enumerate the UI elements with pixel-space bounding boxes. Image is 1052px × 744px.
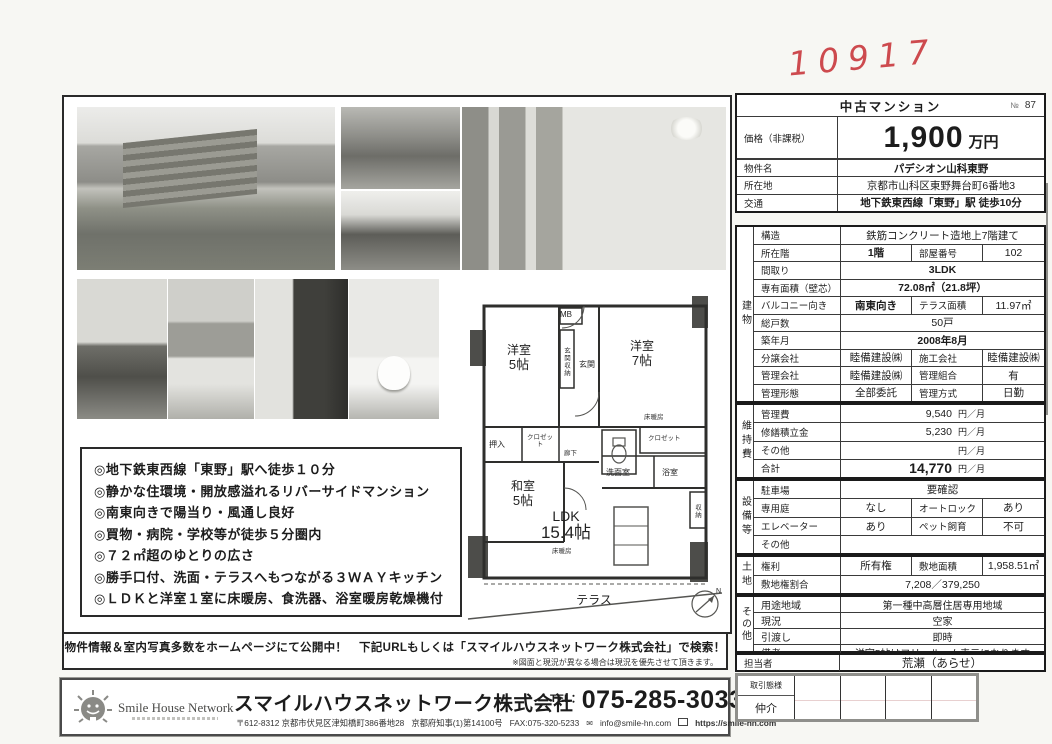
notice-line-2: ※図面と現況が異なる場合は現況を優先させて頂きます。: [64, 657, 726, 668]
table-row: 現況 空家: [754, 612, 1044, 628]
row-value: 荒瀬（あらせ）: [839, 655, 1044, 671]
row-label: 駐車場: [754, 481, 840, 498]
row-value: 第一種中高層住居専用地域: [840, 597, 1044, 612]
row-value: 京都市山科区東野舞台町6番地3: [837, 177, 1044, 193]
row-value: 鉄筋コンクリート造地上7階建て: [840, 227, 1044, 244]
table-row: 引渡し 即時: [754, 628, 1044, 644]
table-row: 合計 14,770円／月: [754, 459, 1044, 477]
row-value: 要確認: [840, 481, 1044, 498]
row-label: 構造: [754, 227, 840, 244]
company-license: 京都府知事(1)第14100号: [411, 718, 502, 728]
notice-line-1: 物件情報＆室内写真多数をホームページにて公開中！ 下記URLもしくは「スマイルハ…: [64, 639, 726, 655]
room-label-terrace: テラス: [564, 594, 624, 608]
row-label: 敷地面積: [911, 557, 982, 575]
photo-bathroom: [255, 279, 348, 419]
deal-empty-cell: [795, 676, 841, 719]
table-row: 交通 地下鉄東西線「東野」駅 徒歩10分: [737, 194, 1044, 211]
table-row: その他: [754, 535, 1044, 553]
deal-type-label: 取引態様: [738, 676, 794, 696]
row-label: 用途地域: [754, 597, 840, 612]
building-section-table: 建物 構造 鉄筋コンクリート造地上7階建て 所在階 1階 部屋番号 102 間取…: [735, 225, 1046, 403]
room-label-storage: 収納: [693, 496, 700, 526]
room-size-japanese-room: 5帖: [500, 494, 546, 509]
other-section-table: その他 用途地域 第一種中高層住居専用地域 現況 空家 引渡し 即時 備考 洋室…: [735, 595, 1046, 653]
table-row: 管理費 9,540円／月: [754, 405, 1044, 422]
row-label: 合計: [754, 460, 840, 477]
room-label-mb: MB: [560, 310, 572, 319]
scan-edge-artifact: [1046, 183, 1048, 415]
company-bar: Smile House Network スマイルハウスネットワーク株式会社 TE…: [60, 678, 730, 736]
company-fax: FAX:075-320-5233: [510, 718, 580, 728]
table-row: 構造 鉄筋コンクリート造地上7階建て: [754, 227, 1044, 244]
table-row: 管理形態 全部委託 管理方式 日勤: [754, 384, 1044, 402]
row-label: 修繕積立金: [754, 423, 840, 440]
table-row: 専用庭 なし オートロック あり: [754, 498, 1044, 516]
room-label-corridor: 廊下: [564, 450, 577, 457]
room-label-closet-right: クロゼット: [648, 435, 681, 442]
section-label-land: 土地: [737, 557, 754, 593]
row-value: パデシオン山科東野: [837, 160, 1044, 176]
sun-face-icon: [72, 688, 114, 730]
company-logo: Smile House Network: [72, 688, 232, 730]
table-row: 管理会社 睦備建設㈱ 管理組合 有: [754, 366, 1044, 384]
page: { "annotations": { "number": "10917", "n…: [0, 0, 1052, 744]
label-floor-heating-ldk: 床暖房: [552, 548, 572, 555]
company-address-line: 〒612-8312 京都市伏見区津知橋町386番地28京都府知事(1)第1410…: [236, 717, 783, 729]
room-label-closet-left: クロゼット: [526, 434, 554, 449]
feature-item: ◎ＬＤＫと洋室１室に床暖房、食洗器、浴室暖房乾燥機付: [94, 588, 450, 610]
row-value: なし: [840, 499, 911, 516]
listing-summary-table: 中古マンション №87 価格（非課税） 1,900万円 物件名 パデシオン山科東…: [735, 93, 1046, 213]
listing-type-title: 中古マンション: [737, 96, 1044, 115]
table-row: 間取り 3LDK: [754, 261, 1044, 279]
row-value: 9,540円／月: [840, 405, 1044, 422]
staff-row-table: 担当者 荒瀬（あらせ）: [735, 653, 1046, 672]
row-value: 1,958.51㎡: [982, 557, 1044, 575]
company-email: info@smile-hn.com: [600, 718, 671, 728]
row-label: 施工会社: [911, 350, 982, 367]
row-label: 敷地権割合: [754, 576, 840, 594]
row-label: 担当者: [737, 655, 839, 671]
row-value: 2008年8月: [840, 332, 1044, 349]
table-row: 築年月 2008年8月: [754, 331, 1044, 349]
room-label-entrance-storage: 玄関収納: [562, 340, 569, 384]
photo-washbasin: [168, 279, 254, 419]
row-value: [840, 536, 1044, 553]
row-value: 50戸: [840, 315, 1044, 332]
room-size-ldk: 15.4帖: [530, 523, 602, 543]
company-postal-address: 〒612-8312 京都市伏見区津知橋町386番地28: [236, 718, 404, 728]
row-label: バルコニー向き: [754, 297, 840, 314]
room-size-west-room-5: 5帖: [496, 358, 542, 373]
feature-item: ◎南東向きで陽当り・風通し良好: [94, 502, 450, 524]
row-label: オートロック: [911, 499, 982, 516]
photo-living-room: [462, 107, 726, 270]
row-label: 引渡し: [754, 629, 840, 644]
table-row: 物件名 パデシオン山科東野: [737, 159, 1044, 176]
section-label-maintenance: 維持費: [737, 405, 754, 477]
notice-box: 物件情報＆室内写真多数をホームページにて公開中！ 下記URLもしくは「スマイルハ…: [62, 632, 728, 670]
row-value: 7,208／379,250: [840, 576, 1044, 594]
row-label: 管理形態: [754, 385, 840, 402]
row-label: その他: [754, 536, 840, 553]
row-label: 管理組合: [911, 367, 982, 384]
row-value: 睦備建設㈱: [982, 350, 1044, 367]
price-label: 価格（非課税）: [737, 117, 837, 158]
table-row: 駐車場 要確認: [754, 481, 1044, 498]
room-label-west-room-7: 洋室: [616, 340, 668, 354]
floorplan-walls: [464, 292, 728, 627]
row-label: 現況: [754, 613, 840, 628]
land-section-table: 土地 権利 所有権 敷地面積 1,958.51㎡ 敷地権割合 7,208／379…: [735, 555, 1046, 595]
row-value: 有: [982, 367, 1044, 384]
handwritten-listing-number: 10917: [787, 32, 940, 84]
company-logo-text: Smile House Network: [118, 700, 234, 716]
room-size-west-room-7: 7帖: [616, 354, 668, 369]
photo-entrance-lobby: [341, 191, 460, 270]
table-row: 所在階 1階 部屋番号 102: [754, 244, 1044, 262]
row-label: 総戸数: [754, 315, 840, 332]
feature-item: ◎７２㎡超のゆとりの広さ: [94, 545, 450, 567]
photo-building-exterior: [77, 107, 335, 270]
row-value: 円／月: [840, 442, 1044, 459]
table-row: 修繕積立金 5,230円／月: [754, 422, 1044, 440]
row-label: 部屋番号: [911, 245, 982, 262]
table-row: 敷地権割合 7,208／379,250: [754, 575, 1044, 594]
number-symbol: №: [1010, 101, 1019, 110]
room-label-bathroom: 浴室: [662, 468, 678, 477]
row-label: 管理会社: [754, 367, 840, 384]
deal-empty-cell: [841, 676, 887, 719]
row-label: 物件名: [737, 160, 837, 176]
compass-icon: N: [716, 588, 721, 596]
price-value: 1,900万円: [837, 117, 1044, 158]
row-label: 所在地: [737, 177, 837, 193]
row-value: 空家: [840, 613, 1044, 628]
deal-empty-cell: [886, 676, 932, 719]
section-label-facilities: 設備等: [737, 481, 754, 553]
deal-type-cell: 取引態様 仲介: [738, 676, 795, 719]
price-row: 価格（非課税） 1,900万円: [737, 117, 1044, 159]
row-label: 分譲会社: [754, 350, 840, 367]
row-label: 権利: [754, 557, 840, 575]
row-value: 102: [982, 245, 1044, 262]
facilities-section-table: 設備等 駐車場 要確認 専用庭 なし オートロック あり エレベーター あり ペ…: [735, 479, 1046, 555]
row-label: 管理方式: [911, 385, 982, 402]
room-label-oshiire: 押入: [489, 440, 505, 449]
deal-empty-cell: [932, 676, 977, 719]
row-value: 睦備建設㈱: [840, 367, 911, 384]
room-label-washroom: 洗面室: [606, 468, 630, 477]
row-label: 専有面積（壁芯）: [754, 280, 840, 297]
table-row: その他 円／月: [754, 441, 1044, 459]
row-value: 72.08㎡（21.8坪）: [840, 280, 1044, 297]
row-value: 11.97㎡: [982, 297, 1044, 314]
table-row: 担当者 荒瀬（あらせ）: [737, 655, 1044, 671]
table-row: 総戸数 50戸: [754, 314, 1044, 332]
table-row: エレベーター あり ペット飼育 不可: [754, 517, 1044, 535]
row-value: 3LDK: [840, 262, 1044, 279]
row-value: 地下鉄東西線「東野」駅 徒歩10分: [837, 195, 1044, 211]
email-icon: ✉: [586, 719, 593, 728]
row-value: 南東向き: [840, 297, 911, 314]
row-label: エレベーター: [754, 518, 840, 535]
company-name: スマイルハウスネットワーク株式会社: [234, 687, 573, 716]
table-row: 用途地域 第一種中高層住居専用地域: [754, 597, 1044, 612]
row-value: 全部委託: [840, 385, 911, 402]
maintenance-section-table: 維持費 管理費 9,540円／月 修繕積立金 5,230円／月 その他 円／月 …: [735, 403, 1046, 479]
listing-number: №87: [1010, 100, 1036, 111]
label-floor-heating: 床暖房: [644, 414, 664, 421]
row-label: 専用庭: [754, 499, 840, 516]
feature-item: ◎勝手口付、洗面・テラスへもつながる３ＷＡＹキッチン: [94, 567, 450, 589]
room-label-west-room-5: 洋室: [496, 344, 542, 358]
row-value: あり: [982, 499, 1044, 516]
company-phone: TEL：075-285-3033: [550, 686, 743, 715]
tel-number: 075-285-3033: [582, 686, 744, 714]
feature-item: ◎静かな住環境・開放感溢れるリバーサイドマンション: [94, 481, 450, 503]
row-label: 所在階: [754, 245, 840, 262]
row-label: ペット飼育: [911, 518, 982, 535]
table-row: 権利 所有権 敷地面積 1,958.51㎡: [754, 557, 1044, 575]
row-label: 間取り: [754, 262, 840, 279]
table-row: 所在地 京都市山科区東野舞台町6番地3: [737, 176, 1044, 193]
row-label: その他: [754, 442, 840, 459]
company-logo-tagline: [132, 717, 218, 720]
deal-type-value: 仲介: [738, 696, 794, 719]
floorplan: MB 玄関収納 玄関 洋室 5帖 洋室 7帖 床暖房 押入 クロゼット 廊下 ク…: [464, 292, 728, 627]
feature-item: ◎地下鉄東西線「東野」駅へ徒歩１０分: [94, 459, 450, 481]
row-label: 管理費: [754, 405, 840, 422]
row-value: 日勤: [982, 385, 1044, 402]
room-label-ldk: LDK: [536, 508, 596, 524]
main-photo-board: ◎地下鉄東西線「東野」駅へ徒歩１０分 ◎静かな住環境・開放感溢れるリバーサイドマ…: [62, 95, 732, 634]
feature-item: ◎買物・病院・学校等が徒歩５分圏内: [94, 524, 450, 546]
row-value: 1階: [840, 245, 911, 262]
row-value: 5,230円／月: [840, 423, 1044, 440]
photo-toilet: [349, 279, 439, 419]
row-label: テラス面積: [911, 297, 982, 314]
row-label: 交通: [737, 195, 837, 211]
table-row: 専有面積（壁芯） 72.08㎡（21.8坪）: [754, 279, 1044, 297]
row-value: 睦備建設㈱: [840, 350, 911, 367]
table-row: バルコニー向き 南東向き テラス面積 11.97㎡: [754, 296, 1044, 314]
room-label-japanese-room: 和室: [500, 480, 546, 494]
section-label-building: 建物: [737, 227, 754, 401]
web-icon: [678, 718, 688, 726]
table-header: 中古マンション №87: [737, 95, 1044, 117]
tel-label: TEL：: [550, 693, 582, 705]
row-value: 所有権: [840, 557, 911, 575]
table-row: 分譲会社 睦備建設㈱ 施工会社 睦備建設㈱: [754, 349, 1044, 367]
features-box: ◎地下鉄東西線「東野」駅へ徒歩１０分 ◎静かな住環境・開放感溢れるリバーサイドマ…: [80, 447, 462, 617]
deal-type-box: 取引態様 仲介: [735, 673, 979, 722]
row-label: 築年月: [754, 332, 840, 349]
section-label-other: その他: [737, 597, 754, 651]
photo-kitchen: [77, 279, 167, 419]
row-value: 即時: [840, 629, 1044, 644]
row-value: 14,770円／月: [840, 460, 1044, 477]
row-value: あり: [840, 518, 911, 535]
room-label-entrance: 玄関: [579, 360, 595, 369]
photo-entrance-approach: [341, 107, 460, 189]
row-value: 不可: [982, 518, 1044, 535]
